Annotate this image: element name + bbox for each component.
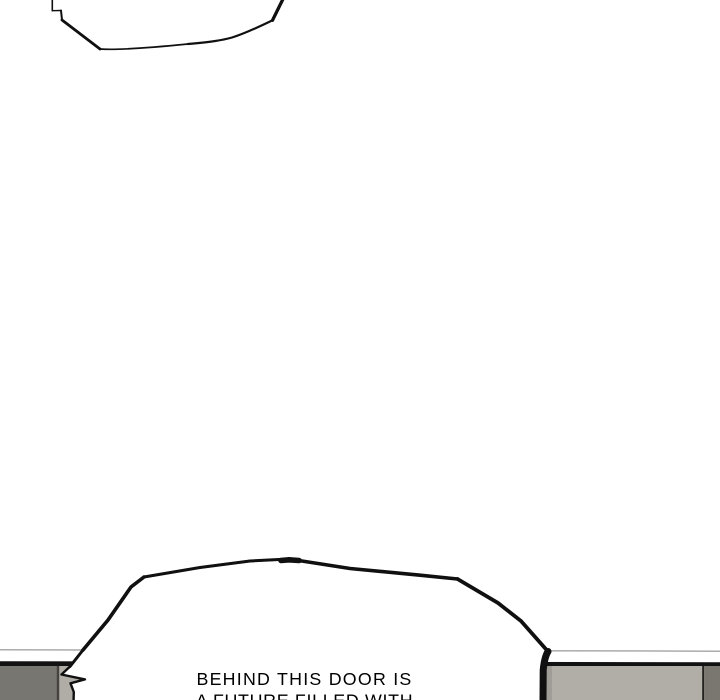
svg-text:BEHIND THIS DOOR IS: BEHIND THIS DOOR IS: [196, 669, 412, 689]
svg-text:A FUTURE FILLED WITH: A FUTURE FILLED WITH: [196, 691, 414, 700]
